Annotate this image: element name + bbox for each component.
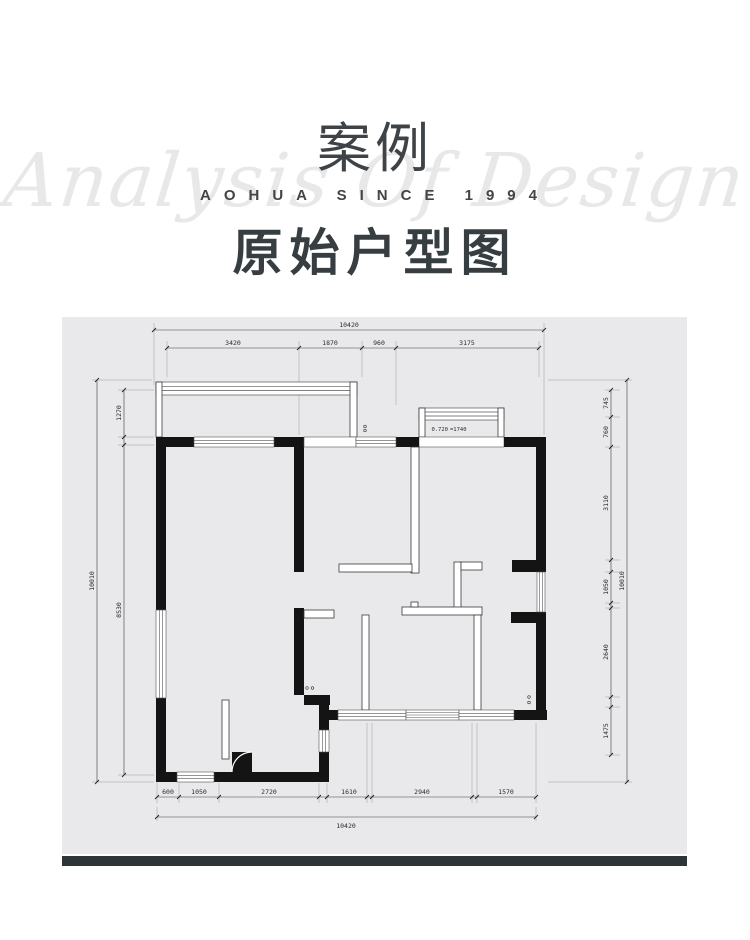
bay-threshold xyxy=(419,437,504,447)
partition-bedroom-vertical xyxy=(362,615,369,710)
dim-bottom-1: 600 xyxy=(162,788,174,796)
bay-label-height: 0.720 xyxy=(431,427,448,433)
balcony-left-wall xyxy=(156,382,162,437)
balcony-right-wall xyxy=(350,382,357,437)
dim-bottom-2: 1050 xyxy=(191,788,207,796)
opening-balcony-door xyxy=(304,437,356,447)
wall-right-stub-2 xyxy=(511,612,544,623)
dim-right-total: 10010 xyxy=(618,571,626,591)
wall-bottom-right-corner xyxy=(514,710,547,720)
wall-kitchen-top xyxy=(304,695,330,705)
partition-bath-vertical xyxy=(474,615,481,710)
wall-right-stub-1 xyxy=(512,560,546,572)
wall-top-3 xyxy=(396,437,419,447)
dim-left-2: 8530 xyxy=(115,602,123,618)
dim-bottom-3: 2720 xyxy=(261,788,277,796)
dim-top-4: 3175 xyxy=(459,339,475,347)
fixture-mark xyxy=(311,687,314,690)
dimension-lines xyxy=(97,330,627,817)
bay-window: 0.720 =1740 xyxy=(419,408,504,447)
structural-walls xyxy=(156,437,547,782)
dim-right-2: 760 xyxy=(602,426,610,438)
bay-label-width: =1740 xyxy=(450,427,467,433)
bay-window-band xyxy=(419,408,504,420)
floorplan-card: 10420 3420 1870 960 3175 10010 1270 8530… xyxy=(62,317,687,854)
window-top-1 xyxy=(194,437,274,447)
balcony-window-band xyxy=(156,382,357,395)
dim-top-3: 960 xyxy=(373,339,385,347)
dim-right-6: 1475 xyxy=(602,723,610,739)
dim-bottom-total: 10420 xyxy=(336,822,356,830)
fixture-mark xyxy=(364,429,367,432)
window-right xyxy=(537,572,545,612)
window-kitchen xyxy=(319,730,329,752)
dim-top-total: 10420 xyxy=(339,321,359,329)
fixture-mark xyxy=(528,696,531,699)
partition-kitchen-vertical xyxy=(222,700,229,759)
partition-hall-vertical xyxy=(411,447,419,573)
wall-left-upper xyxy=(156,437,166,610)
window-left xyxy=(156,610,166,698)
wall-top-2 xyxy=(274,437,304,447)
wall-bottom-left-2 xyxy=(214,772,329,782)
wall-bottom-junction xyxy=(329,710,338,720)
page-subtitle: 原始户型图 xyxy=(0,213,750,285)
wall-right-upper xyxy=(536,440,546,572)
bay-left-wall xyxy=(419,408,425,437)
band-bottom-1 xyxy=(338,710,406,720)
partition-kitchen-horizontal xyxy=(304,610,334,618)
wall-center-lower xyxy=(294,608,304,695)
dim-left-1: 1270 xyxy=(115,405,123,421)
partition-bath-horizontal xyxy=(402,607,482,615)
wall-top-1 xyxy=(156,437,194,447)
wall-kitchen-right-2 xyxy=(319,752,329,772)
band-bottom-2 xyxy=(459,710,514,720)
dim-right-4: 1050 xyxy=(602,579,610,595)
dim-bottom-6: 1570 xyxy=(498,788,514,796)
dim-right-1: 745 xyxy=(602,397,610,409)
watermark-caps-text: AOHUA SINCE 1994 xyxy=(0,187,750,204)
wall-left-lower xyxy=(156,698,166,772)
window-top-2 xyxy=(356,437,396,447)
partition-closet-vertical xyxy=(454,562,461,612)
fixture-mark xyxy=(306,687,309,690)
dim-bottom-4: 1610 xyxy=(341,788,357,796)
wall-right-lower xyxy=(536,612,546,718)
dimension-ticks xyxy=(95,328,629,819)
dim-top-2: 1870 xyxy=(322,339,338,347)
dim-bottom-5: 2940 xyxy=(414,788,430,796)
wall-center-upper xyxy=(294,447,304,572)
dim-left-total: 10010 xyxy=(88,571,96,591)
wall-openings xyxy=(156,437,545,782)
kitchen-door-symbol xyxy=(232,752,252,772)
header: Analysis Of Design 案例 AOHUA SINCE 1994 原… xyxy=(0,0,750,300)
partition-bath-notch xyxy=(411,602,418,607)
wall-kitchen-right-1 xyxy=(319,705,329,730)
page-title: 案例 xyxy=(0,104,750,183)
dim-top-1: 3420 xyxy=(225,339,241,347)
door-bottom-left xyxy=(177,772,214,782)
fixture-mark xyxy=(528,701,531,704)
bay-right-wall xyxy=(498,408,504,437)
dim-right-3: 3110 xyxy=(602,495,610,511)
balcony xyxy=(156,382,357,437)
dim-right-5: 2640 xyxy=(602,644,610,660)
footer-bar xyxy=(62,856,687,866)
wall-bottom-left-1 xyxy=(156,772,177,782)
floorplan-drawing: 10420 3420 1870 960 3175 10010 1270 8530… xyxy=(62,317,687,854)
partition-closet-horizontal xyxy=(461,562,482,570)
fixture-mark xyxy=(364,425,367,428)
partition-hall-horizontal xyxy=(339,564,412,572)
